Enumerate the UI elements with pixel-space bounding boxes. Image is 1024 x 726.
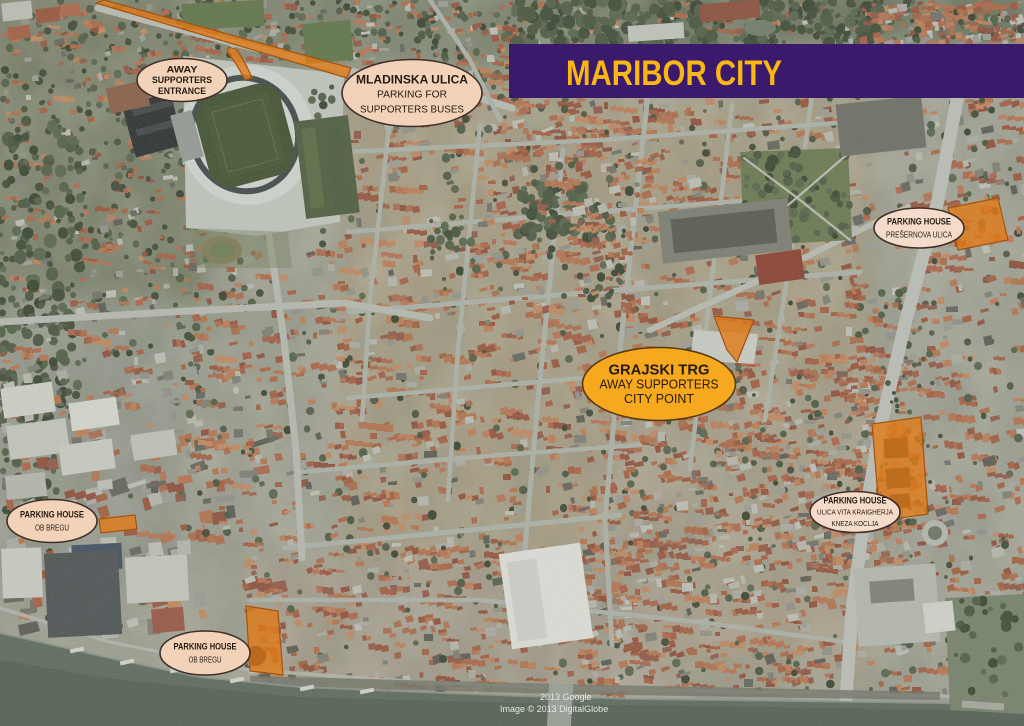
svg-text:PREŠERNOVA ULICA: PREŠERNOVA ULICA: [886, 230, 953, 239]
svg-text:PARKING HOUSE: PARKING HOUSE: [20, 510, 84, 520]
svg-text:ENTRANCE: ENTRANCE: [158, 86, 206, 96]
svg-text:PARKING HOUSE: PARKING HOUSE: [824, 496, 887, 506]
svg-text:ULICA VITA KRAIGHERJA: ULICA VITA KRAIGHERJA: [817, 508, 893, 517]
svg-text:AWAY SUPPORTERS: AWAY SUPPORTERS: [600, 377, 719, 391]
svg-text:PARKING FOR: PARKING FOR: [377, 89, 447, 101]
svg-text:MLADINSKA ULICA: MLADINSKA ULICA: [356, 73, 468, 87]
svg-text:GRAJSKI TRG: GRAJSKI TRG: [609, 361, 710, 378]
svg-text:Image © 2013 DigitalGlobe: Image © 2013 DigitalGlobe: [500, 704, 608, 714]
svg-text:AWAY: AWAY: [167, 65, 198, 75]
svg-text:OB BREGU: OB BREGU: [189, 655, 222, 664]
svg-text:KNEZA KOCLJA: KNEZA KOCLJA: [832, 519, 879, 528]
svg-text:OB BREGU: OB BREGU: [35, 523, 69, 532]
svg-text:SUPPORTERS: SUPPORTERS: [152, 75, 212, 85]
svg-text:MARIBOR CITY: MARIBOR CITY: [566, 54, 782, 93]
svg-text:2013 Google: 2013 Google: [540, 692, 592, 702]
svg-text:PARKING HOUSE: PARKING HOUSE: [174, 642, 237, 652]
svg-text:SUPPORTERS BUSES: SUPPORTERS BUSES: [360, 103, 464, 115]
svg-text:CITY POINT: CITY POINT: [624, 392, 694, 406]
svg-text:PARKING HOUSE: PARKING HOUSE: [887, 217, 951, 227]
